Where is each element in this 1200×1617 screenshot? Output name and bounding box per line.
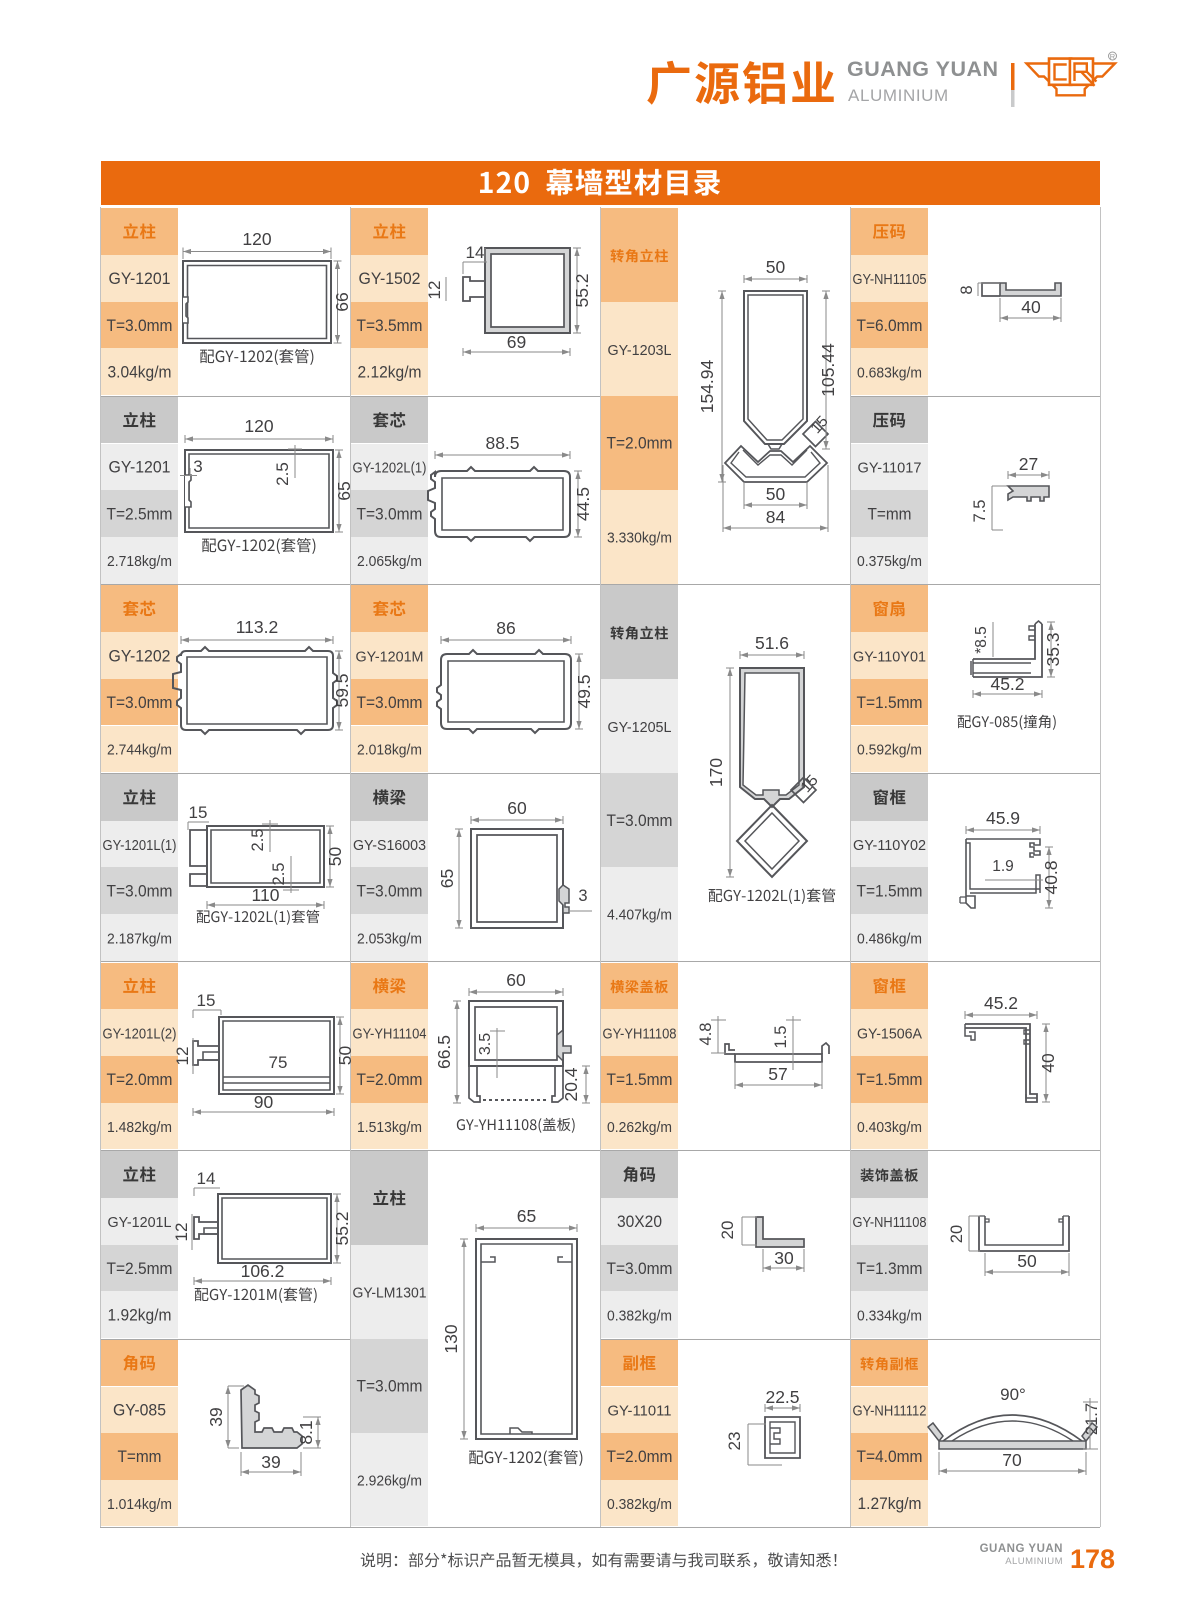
- svg-text:110: 110: [252, 885, 280, 905]
- svg-text:T=2.0mm: T=2.0mm: [107, 1070, 173, 1089]
- svg-text:2.744kg/m: 2.744kg/m: [107, 742, 172, 759]
- svg-text:65: 65: [517, 1206, 536, 1226]
- svg-text:15: 15: [189, 803, 208, 822]
- svg-text:T=mm: T=mm: [118, 1447, 162, 1466]
- svg-text:T=1.3mm: T=1.3mm: [857, 1259, 923, 1278]
- svg-text:2.926kg/m: 2.926kg/m: [357, 1472, 422, 1489]
- svg-text:2.718kg/m: 2.718kg/m: [107, 553, 172, 570]
- svg-text:50: 50: [766, 257, 786, 277]
- svg-text:2.065kg/m: 2.065kg/m: [357, 553, 422, 570]
- svg-text:GY-110Y01: GY-110Y01: [853, 648, 926, 665]
- svg-text:1.9: 1.9: [992, 858, 1014, 875]
- svg-text:15: 15: [197, 991, 216, 1010]
- svg-text:12: 12: [425, 281, 444, 300]
- svg-text:3: 3: [578, 887, 587, 905]
- svg-text:12: 12: [172, 1223, 191, 1242]
- svg-text:75: 75: [269, 1053, 288, 1072]
- svg-text:50: 50: [1017, 1251, 1037, 1271]
- svg-text:20.4: 20.4: [561, 1067, 581, 1101]
- svg-text:2.12kg/m: 2.12kg/m: [358, 362, 422, 381]
- svg-text:T=1.5mm: T=1.5mm: [857, 882, 923, 901]
- svg-text:86: 86: [496, 618, 515, 638]
- svg-text:T=1.5mm: T=1.5mm: [857, 693, 923, 712]
- svg-text:GY-1201M: GY-1201M: [356, 648, 424, 665]
- svg-text:GY-1506A: GY-1506A: [857, 1025, 923, 1042]
- svg-text:2.5: 2.5: [249, 829, 267, 852]
- svg-text:1.5: 1.5: [772, 1026, 790, 1049]
- svg-text:T=3.0mm: T=3.0mm: [357, 504, 423, 523]
- svg-text:T=2.0mm: T=2.0mm: [607, 434, 673, 453]
- svg-text:GY-S16003: GY-S16003: [353, 837, 426, 854]
- svg-text:GY-1502: GY-1502: [359, 269, 421, 288]
- svg-text:GY-YH11104: GY-YH11104: [353, 1025, 427, 1042]
- svg-text:*8.5: *8.5: [973, 626, 990, 654]
- svg-text:0.382kg/m: 0.382kg/m: [607, 1496, 672, 1513]
- svg-text:65: 65: [334, 481, 354, 500]
- svg-text:T=2.0mm: T=2.0mm: [607, 1447, 673, 1466]
- svg-text:0.334kg/m: 0.334kg/m: [857, 1307, 922, 1324]
- svg-text:T=3.0mm: T=3.0mm: [357, 882, 423, 901]
- svg-text:45.2: 45.2: [984, 993, 1018, 1013]
- svg-text:1.92kg/m: 1.92kg/m: [108, 1305, 172, 1324]
- svg-text:0.382kg/m: 0.382kg/m: [607, 1307, 672, 1324]
- svg-text:GY-NH11105: GY-NH11105: [853, 271, 927, 288]
- svg-text:14: 14: [197, 1169, 216, 1188]
- svg-text:40: 40: [1038, 1053, 1058, 1073]
- svg-text:113.2: 113.2: [236, 617, 279, 637]
- svg-text:55.2: 55.2: [332, 1211, 352, 1245]
- svg-text:GY-1201L(1): GY-1201L(1): [103, 837, 177, 854]
- svg-text:T=2.0mm: T=2.0mm: [357, 1070, 423, 1089]
- svg-text:14: 14: [466, 243, 485, 262]
- svg-text:40.8: 40.8: [1041, 860, 1061, 894]
- svg-text:39: 39: [206, 1407, 226, 1426]
- svg-text:T=2.5mm: T=2.5mm: [107, 504, 173, 523]
- svg-text:3.330kg/m: 3.330kg/m: [607, 529, 672, 546]
- svg-text:GY-1201L(2): GY-1201L(2): [103, 1025, 177, 1042]
- svg-text:66.5: 66.5: [434, 1035, 454, 1069]
- svg-text:1.014kg/m: 1.014kg/m: [107, 1496, 172, 1513]
- svg-text:59.5: 59.5: [332, 673, 352, 707]
- svg-text:GY-1202L(1): GY-1202L(1): [353, 460, 427, 477]
- svg-text:60: 60: [507, 798, 527, 818]
- svg-text:84: 84: [766, 507, 786, 527]
- svg-text:GY-NH11112: GY-NH11112: [853, 1403, 927, 1420]
- svg-text:51.6: 51.6: [755, 633, 789, 653]
- svg-text:88.5: 88.5: [485, 433, 519, 453]
- svg-text:2.5: 2.5: [273, 462, 292, 486]
- svg-text:0.403kg/m: 0.403kg/m: [857, 1119, 922, 1136]
- svg-text:4.8: 4.8: [697, 1023, 715, 1046]
- svg-text:2.187kg/m: 2.187kg/m: [107, 930, 172, 947]
- svg-text:R: R: [1110, 52, 1116, 61]
- svg-text:130: 130: [441, 1324, 461, 1353]
- svg-text:21.7: 21.7: [1083, 1403, 1101, 1435]
- svg-text:44.5: 44.5: [573, 487, 593, 521]
- svg-text:45.9: 45.9: [986, 808, 1020, 828]
- svg-text:GY-1201L: GY-1201L: [108, 1214, 172, 1231]
- svg-text:T=3.0mm: T=3.0mm: [607, 1259, 673, 1278]
- svg-text:GY-11017: GY-11017: [858, 460, 922, 477]
- svg-text:T=1.5mm: T=1.5mm: [857, 1070, 923, 1089]
- svg-text:45.2: 45.2: [990, 674, 1024, 694]
- svg-text:22.5: 22.5: [765, 1387, 799, 1407]
- svg-text:49.5: 49.5: [574, 674, 594, 708]
- svg-text:T=3.0mm: T=3.0mm: [107, 693, 173, 712]
- svg-text:0.262kg/m: 0.262kg/m: [607, 1119, 672, 1136]
- svg-text:T=4.0mm: T=4.0mm: [857, 1447, 923, 1466]
- svg-text:2.018kg/m: 2.018kg/m: [357, 742, 422, 759]
- svg-text:8: 8: [958, 285, 976, 294]
- svg-text:40: 40: [1021, 297, 1041, 317]
- svg-text:0.683kg/m: 0.683kg/m: [857, 364, 922, 381]
- svg-text:T=3.0mm: T=3.0mm: [607, 811, 673, 830]
- svg-text:55.2: 55.2: [572, 273, 592, 307]
- svg-text:90°: 90°: [1000, 1385, 1026, 1404]
- svg-text:T=3.5mm: T=3.5mm: [357, 316, 423, 335]
- svg-text:178: 178: [1070, 1544, 1115, 1574]
- svg-text:GUANG YUAN: GUANG YUAN: [980, 1543, 1063, 1555]
- svg-text:T=3.0mm: T=3.0mm: [107, 316, 173, 335]
- svg-text:66: 66: [332, 292, 352, 311]
- svg-text:3.04kg/m: 3.04kg/m: [108, 362, 172, 381]
- svg-text:12: 12: [173, 1047, 192, 1066]
- svg-text:8.1: 8.1: [296, 1420, 316, 1444]
- svg-text:GY-LM1301: GY-LM1301: [353, 1285, 427, 1302]
- svg-text:23: 23: [725, 1432, 744, 1451]
- svg-text:120: 120: [244, 416, 273, 436]
- svg-text:170: 170: [706, 758, 726, 787]
- svg-text:30X20: 30X20: [617, 1212, 662, 1231]
- svg-text:T=2.5mm: T=2.5mm: [107, 1259, 173, 1278]
- svg-text:50: 50: [335, 1046, 355, 1066]
- svg-text:90: 90: [254, 1092, 274, 1112]
- svg-text:7.5: 7.5: [971, 500, 989, 523]
- svg-text:65: 65: [437, 869, 457, 888]
- svg-text:30: 30: [774, 1248, 794, 1268]
- svg-text:GY-1203L: GY-1203L: [608, 342, 672, 359]
- svg-text:20: 20: [948, 1225, 966, 1243]
- svg-text:GY-085: GY-085: [113, 1401, 166, 1420]
- svg-text:0.375kg/m: 0.375kg/m: [857, 553, 922, 570]
- svg-text:1.513kg/m: 1.513kg/m: [357, 1119, 422, 1136]
- svg-text:105.44: 105.44: [818, 343, 838, 397]
- svg-text:T=3.0mm: T=3.0mm: [107, 882, 173, 901]
- svg-text:0.592kg/m: 0.592kg/m: [857, 742, 922, 759]
- svg-text:35.3: 35.3: [1043, 632, 1063, 666]
- svg-text:4.407kg/m: 4.407kg/m: [607, 907, 672, 924]
- svg-text:154.94: 154.94: [697, 359, 717, 413]
- svg-text:T=6.0mm: T=6.0mm: [857, 316, 923, 335]
- svg-text:2.053kg/m: 2.053kg/m: [357, 930, 422, 947]
- svg-text:2.5: 2.5: [270, 863, 288, 886]
- svg-text:GY-1205L: GY-1205L: [608, 719, 672, 736]
- svg-text:GY-11011: GY-11011: [608, 1403, 672, 1420]
- svg-text:GY-NH11108: GY-NH11108: [853, 1214, 927, 1231]
- svg-text:3: 3: [193, 457, 202, 476]
- svg-text:GY-1202: GY-1202: [109, 646, 171, 665]
- svg-text:57: 57: [768, 1064, 787, 1084]
- svg-text:20: 20: [718, 1221, 737, 1240]
- svg-text:0.486kg/m: 0.486kg/m: [857, 930, 922, 947]
- svg-text:GY-1201: GY-1201: [109, 269, 171, 288]
- svg-text:GY-1201: GY-1201: [109, 458, 171, 477]
- svg-text:T=3.0mm: T=3.0mm: [357, 693, 423, 712]
- svg-text:1.27kg/m: 1.27kg/m: [858, 1494, 922, 1513]
- svg-text:39: 39: [261, 1452, 280, 1472]
- svg-text:3.5: 3.5: [477, 1033, 494, 1055]
- svg-text:69: 69: [507, 332, 526, 352]
- svg-text:50: 50: [325, 847, 345, 867]
- svg-text:ALUMINIUM: ALUMINIUM: [1005, 1556, 1063, 1567]
- svg-text:T=3.0mm: T=3.0mm: [357, 1377, 423, 1396]
- svg-text:T=1.5mm: T=1.5mm: [607, 1070, 673, 1089]
- svg-text:60: 60: [506, 970, 526, 990]
- svg-text:106.2: 106.2: [241, 1261, 285, 1281]
- svg-text:50: 50: [766, 484, 786, 504]
- svg-text:GY-YH11108: GY-YH11108: [603, 1025, 677, 1042]
- svg-text:GY-110Y02: GY-110Y02: [853, 837, 926, 854]
- svg-text:T=mm: T=mm: [868, 504, 912, 523]
- svg-text:120: 120: [242, 229, 271, 249]
- svg-text:70: 70: [1002, 1450, 1022, 1470]
- svg-text:1.482kg/m: 1.482kg/m: [107, 1119, 172, 1136]
- svg-text:27: 27: [1019, 454, 1038, 474]
